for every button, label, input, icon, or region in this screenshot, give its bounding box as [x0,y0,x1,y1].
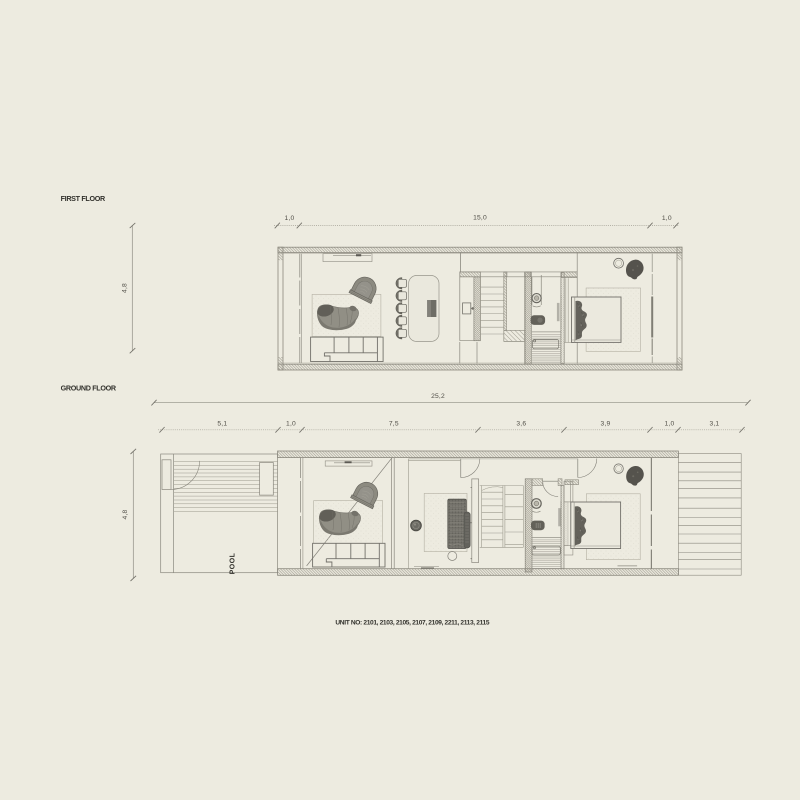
svg-text:POOL: POOL [230,552,237,574]
svg-text:GROUND FLOOR: GROUND FLOOR [61,384,117,393]
svg-text:1,0: 1,0 [285,215,295,222]
svg-text:15,0: 15,0 [473,215,487,222]
svg-text:3,9: 3,9 [601,421,611,428]
svg-text:3,1: 3,1 [709,421,719,428]
svg-text:1,0: 1,0 [286,421,296,428]
svg-text:1,0: 1,0 [662,215,672,222]
svg-text:1,0: 1,0 [665,421,675,428]
svg-text:7,5: 7,5 [389,421,399,428]
svg-text:FIRST FLOOR: FIRST FLOOR [61,194,106,203]
svg-text:5,1: 5,1 [217,421,227,428]
svg-text:3,6: 3,6 [516,421,526,428]
svg-text:4,8: 4,8 [122,509,129,519]
svg-text:25,2: 25,2 [431,393,445,400]
svg-text:4,8: 4,8 [122,283,129,293]
svg-text:UNIT NO: 2101, 2103, 2105, 210: UNIT NO: 2101, 2103, 2105, 2107, 2109, 2… [335,620,489,627]
